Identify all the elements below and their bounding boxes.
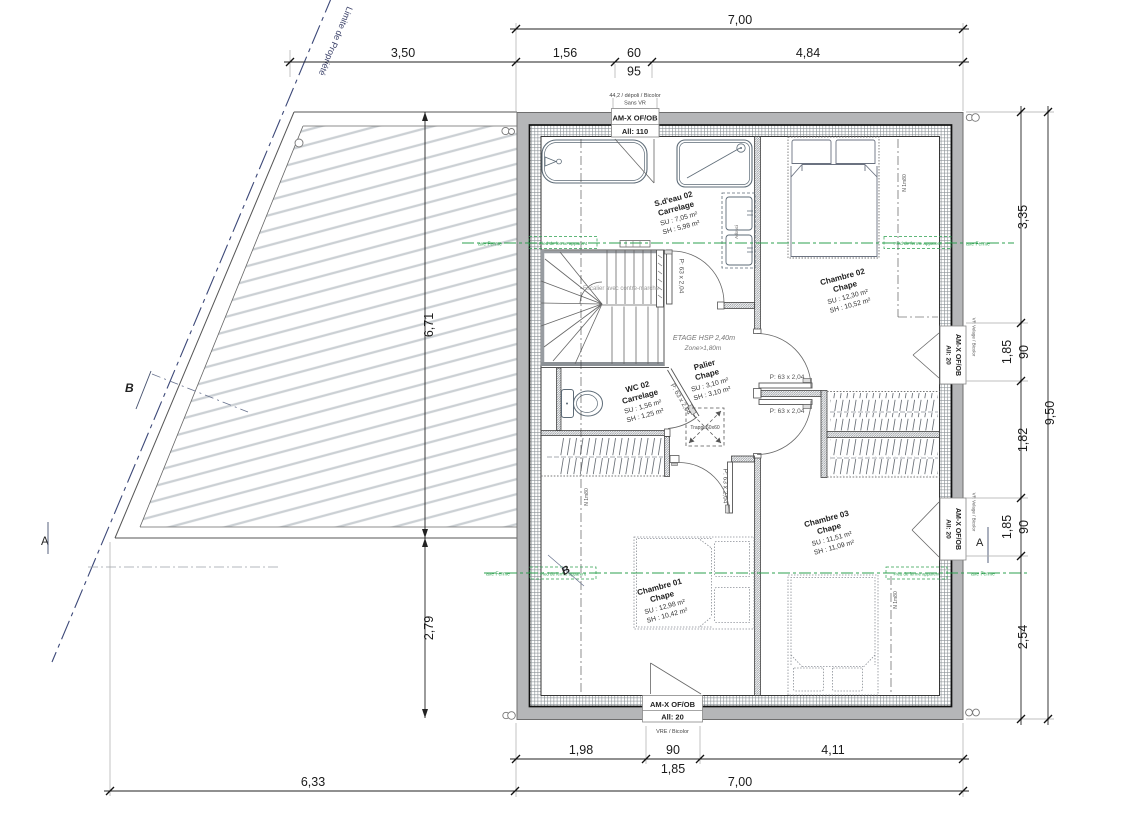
svg-text:9,50: 9,50 xyxy=(1043,401,1057,425)
svg-text:3,35: 3,35 xyxy=(1016,205,1030,229)
svg-text:90: 90 xyxy=(666,743,680,757)
svg-text:Adouci: Adouci xyxy=(734,225,739,239)
svg-text:B: B xyxy=(125,381,134,395)
svg-text:VR Velage / Bicolor: VR Velage / Bicolor xyxy=(972,493,977,532)
svg-text:All: 110: All: 110 xyxy=(622,127,648,136)
svg-text:N 1m80: N 1m80 xyxy=(893,591,899,609)
svg-text:A: A xyxy=(976,537,984,549)
svg-text:1,85: 1,85 xyxy=(1000,515,1014,539)
svg-text:1,98: 1,98 xyxy=(569,743,593,757)
svg-text:Sans VR: Sans VR xyxy=(624,101,646,107)
svg-text:1,85: 1,85 xyxy=(661,762,685,776)
svg-text:axe Ferme: axe Ferme xyxy=(966,242,990,248)
svg-text:VRE / Bicolor: VRE / Bicolor xyxy=(656,729,689,735)
svg-text:AM-X OF/OB: AM-X OF/OB xyxy=(954,508,961,550)
svg-text:axe Ferme: axe Ferme xyxy=(486,572,510,578)
svg-text:P: 63 x 2,04: P: 63 x 2,04 xyxy=(669,382,693,416)
svg-text:All: 20: All: 20 xyxy=(661,713,684,722)
svg-text:6,33: 6,33 xyxy=(301,775,325,789)
svg-text:Pied de ferme apparent: Pied de ferme apparent xyxy=(894,572,941,577)
svg-text:AM-X OF/OB: AM-X OF/OB xyxy=(613,114,659,123)
svg-text:1,56: 1,56 xyxy=(553,46,577,60)
svg-text:P: 63 x 2,04: P: 63 x 2,04 xyxy=(770,374,805,381)
svg-text:3,50: 3,50 xyxy=(391,46,415,60)
svg-text:6,71: 6,71 xyxy=(422,313,436,337)
svg-text:2,54: 2,54 xyxy=(1016,625,1030,649)
svg-text:P: 63 x 2,04: P: 63 x 2,04 xyxy=(678,259,685,294)
svg-text:P: 63 x 2,04: P: 63 x 2,04 xyxy=(722,469,729,504)
svg-text:44,2 / dépoli / Bicolor: 44,2 / dépoli / Bicolor xyxy=(609,93,661,99)
svg-text:Trappe60x60: Trappe60x60 xyxy=(690,425,719,431)
svg-text:90: 90 xyxy=(1017,520,1031,534)
svg-text:Zone>1,80m: Zone>1,80m xyxy=(684,345,722,352)
svg-text:N 1m80: N 1m80 xyxy=(902,174,908,192)
svg-text:95: 95 xyxy=(627,65,641,79)
svg-text:60: 60 xyxy=(627,46,641,60)
svg-text:7,00: 7,00 xyxy=(728,13,752,27)
svg-text:4,84: 4,84 xyxy=(796,46,820,60)
svg-text:7,00: 7,00 xyxy=(728,775,752,789)
svg-text:AM-X OF/OB: AM-X OF/OB xyxy=(954,334,961,376)
svg-text:2,79: 2,79 xyxy=(422,616,436,640)
svg-text:Escalier avec contre-marche: Escalier avec contre-marche xyxy=(583,286,660,292)
svg-text:axe Ferme: axe Ferme xyxy=(971,572,995,578)
svg-text:Pied de ferme apparent: Pied de ferme apparent xyxy=(539,241,588,246)
svg-text:Pied de ferme apparent: Pied de ferme apparent xyxy=(893,241,942,246)
svg-text:4,11: 4,11 xyxy=(821,743,844,757)
svg-text:ETAGE HSP 2,40m: ETAGE HSP 2,40m xyxy=(673,333,735,342)
svg-text:Limite de Propriété: Limite de Propriété xyxy=(317,5,355,77)
svg-text:VR Velage / Bicolor: VR Velage / Bicolor xyxy=(972,318,977,357)
svg-text:All: 20: All: 20 xyxy=(945,519,952,539)
svg-text:axe Ferme: axe Ferme xyxy=(478,242,502,248)
svg-text:All: 20: All: 20 xyxy=(945,345,952,365)
svg-text:N 1m80: N 1m80 xyxy=(584,488,590,506)
svg-text:90: 90 xyxy=(1017,345,1031,359)
svg-text:AM-X OF/OB: AM-X OF/OB xyxy=(650,700,696,709)
svg-text:P: 63 x 2,04: P: 63 x 2,04 xyxy=(770,408,805,415)
svg-text:1,82: 1,82 xyxy=(1016,428,1030,452)
svg-text:1,85: 1,85 xyxy=(1000,340,1014,364)
